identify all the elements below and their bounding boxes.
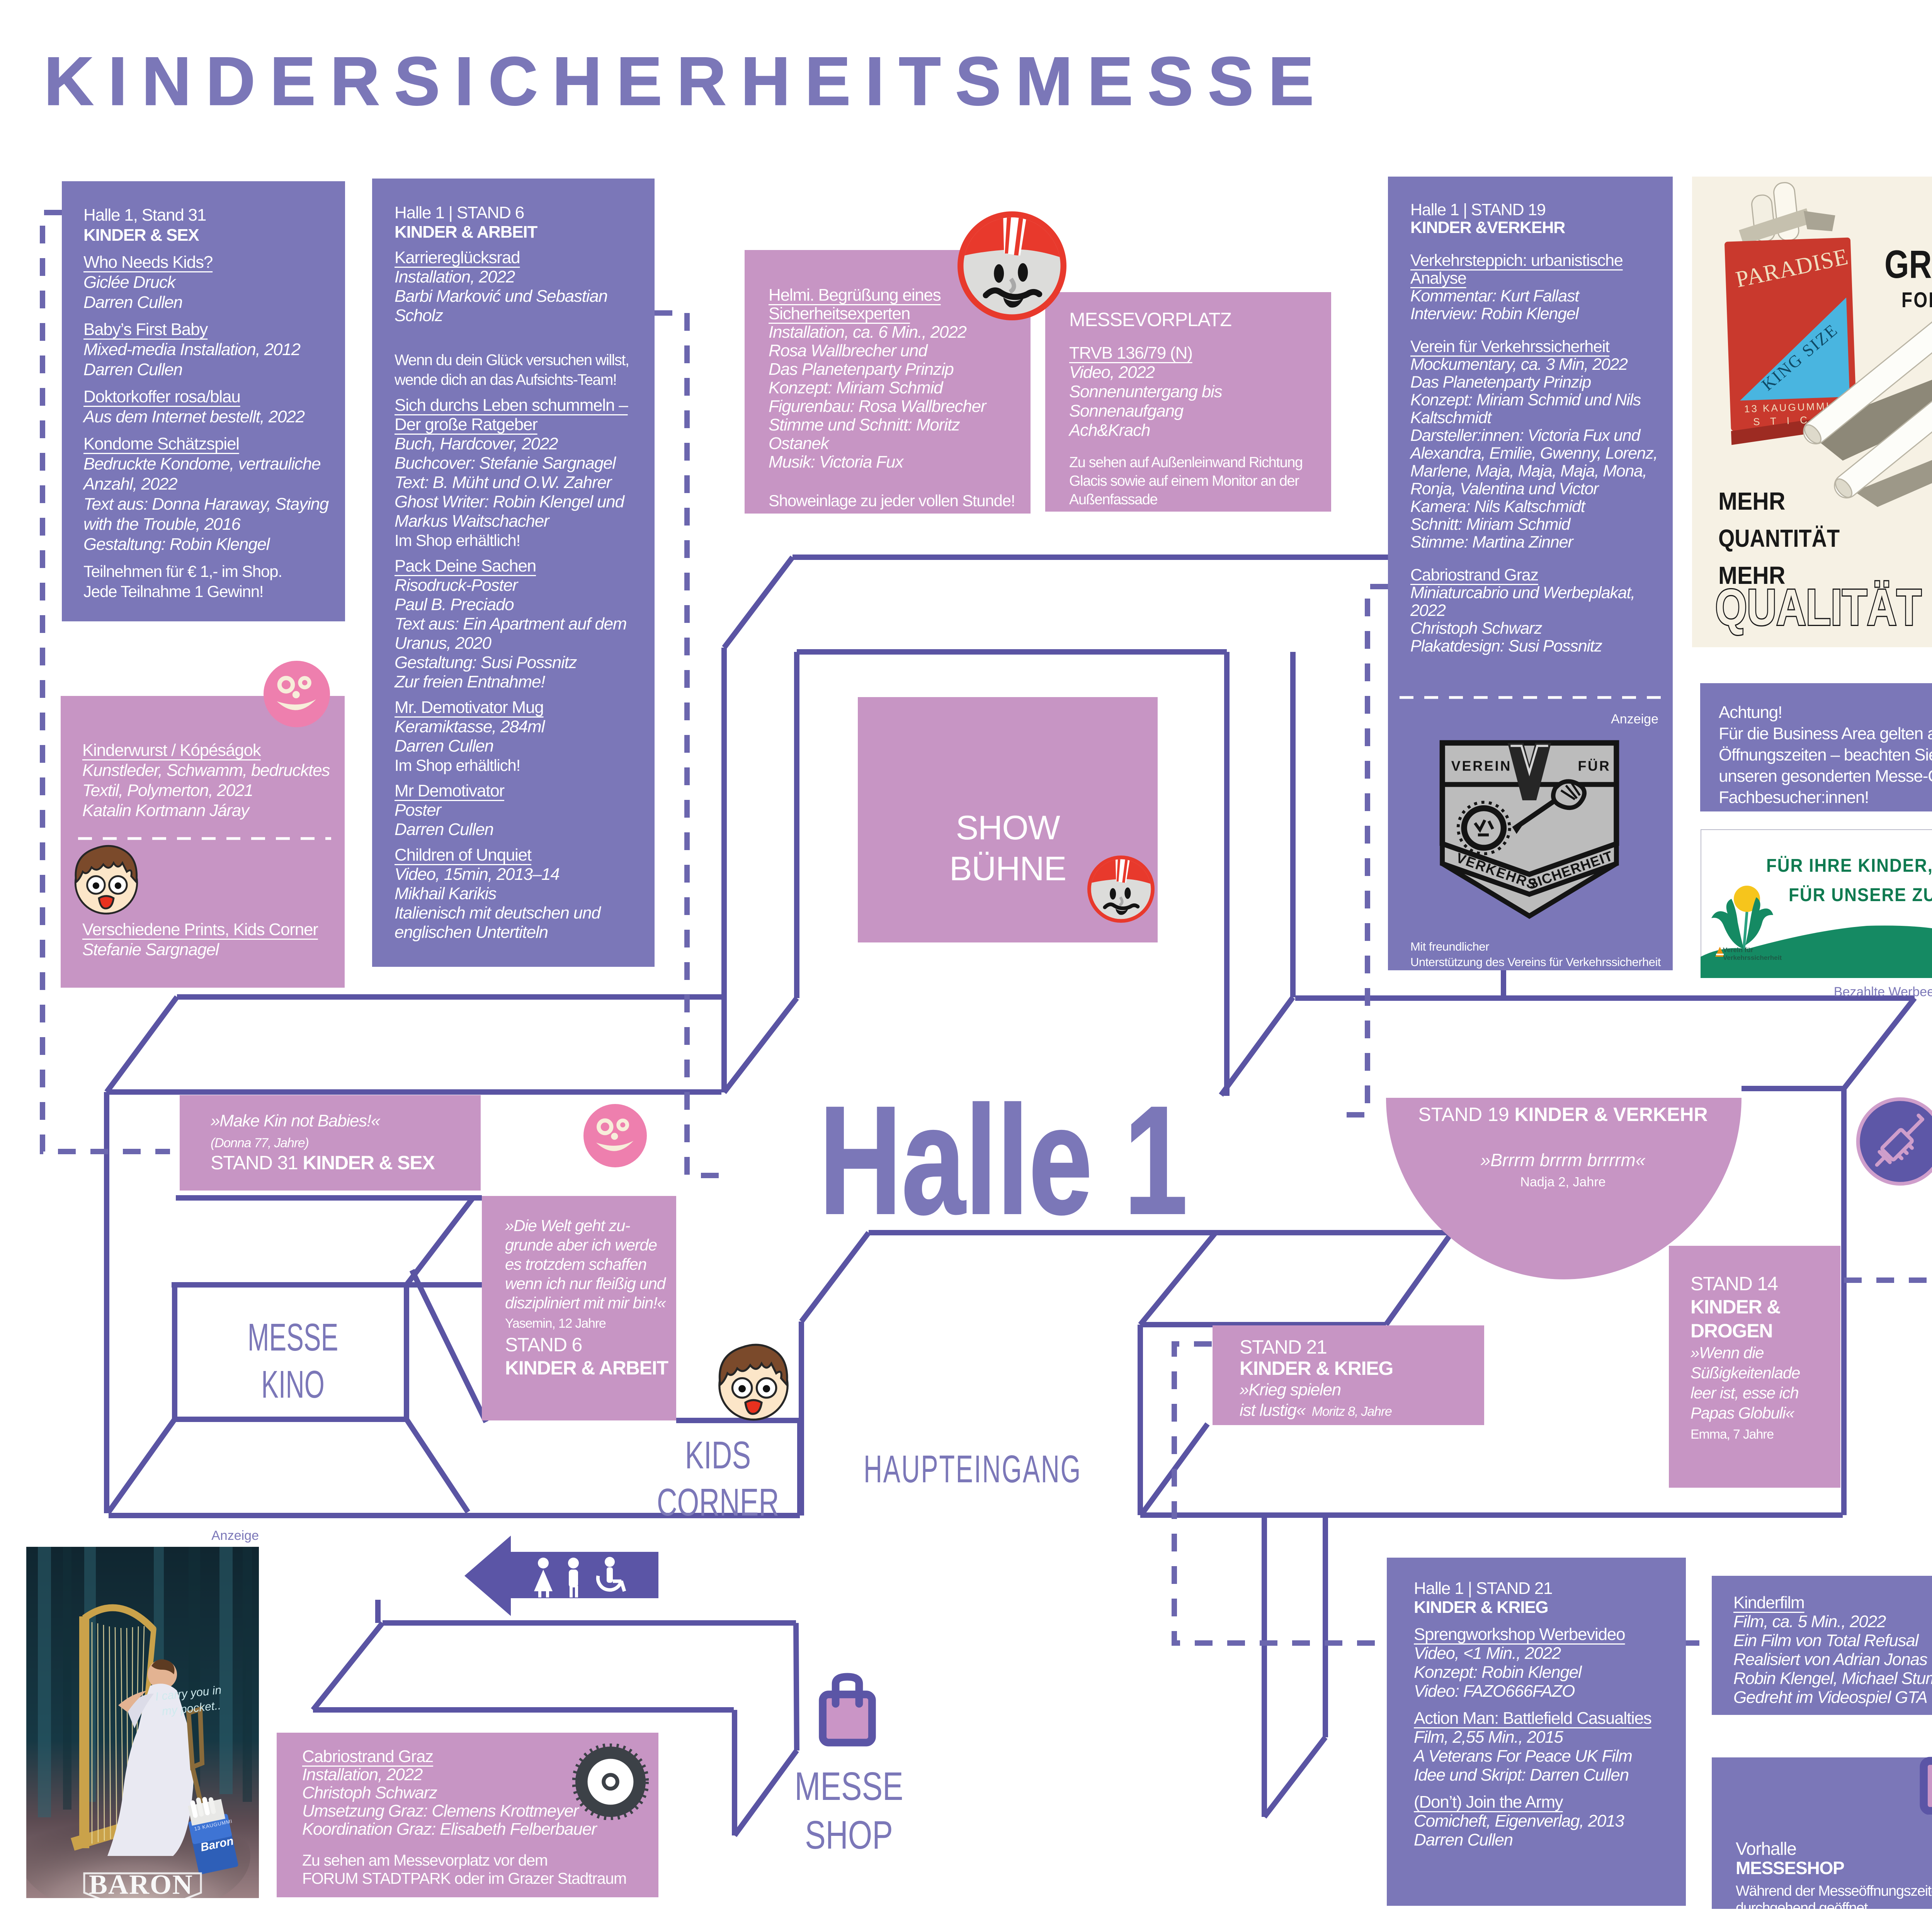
svg-text:FÜR IHRE KINDER,: FÜR IHRE KINDER, xyxy=(1766,855,1932,876)
svg-text:GROSS: GROSS xyxy=(1884,242,1932,286)
svg-text:FÜR UNSERE ZUKUNFT!: FÜR UNSERE ZUKUNFT! xyxy=(1789,884,1932,905)
svg-text:FÜR: FÜR xyxy=(1578,758,1611,774)
svg-text:Verkehrssicherheit: Verkehrssicherheit xyxy=(1723,954,1782,961)
svg-text:Verein für: Verein für xyxy=(1723,946,1753,954)
svg-text:MEHR: MEHR xyxy=(1718,488,1785,515)
svg-text:QUALITÄT: QUALITÄT xyxy=(1715,579,1922,636)
svg-text:QUANTITÄT: QUANTITÄT xyxy=(1718,524,1840,552)
svg-text:FORMAT: FORMAT xyxy=(1901,288,1932,312)
svg-text:BARON: BARON xyxy=(89,1869,193,1898)
svg-text:VEREIN: VEREIN xyxy=(1451,758,1512,774)
